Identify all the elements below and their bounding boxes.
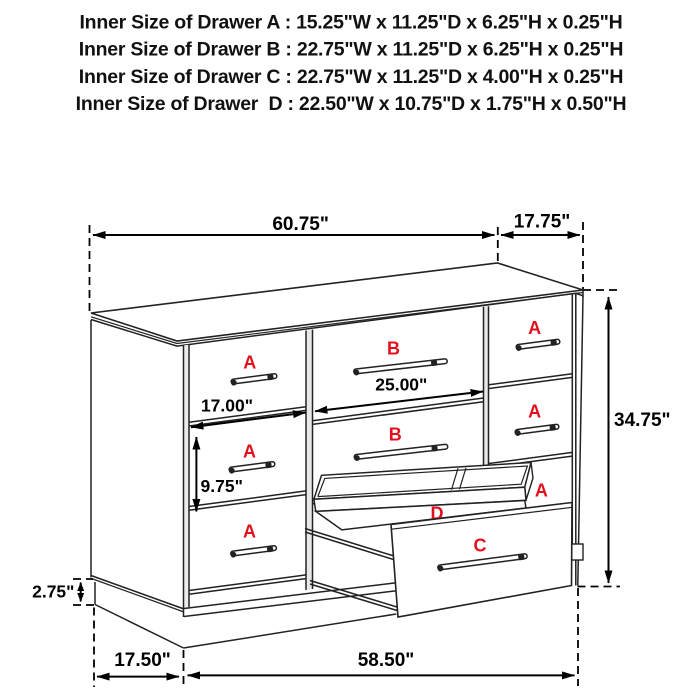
svg-text:A: A [243,441,256,461]
svg-text:60.75": 60.75" [272,214,329,235]
svg-text:A: A [528,318,541,338]
svg-text:Inner Size of Drawer B : 22.75: Inner Size of Drawer B : 22.75"W x 11.25… [79,39,623,61]
svg-text:58.50": 58.50" [358,650,415,671]
svg-text:A: A [528,401,541,421]
svg-text:Inner Size of Drawer A : 15.25: Inner Size of Drawer A : 15.25"W x 11.25… [80,11,623,33]
svg-text:C: C [474,535,487,555]
svg-text:17.00": 17.00" [201,396,253,416]
svg-text:A: A [535,481,548,501]
svg-text:Inner Size of Drawer D : 22.5: Inner Size of Drawer D : 22.50"W x 10.75… [76,93,627,115]
svg-text:Inner Size of Drawer C : 22.75: Inner Size of Drawer C : 22.75"W x 11.25… [79,66,623,88]
svg-text:34.75": 34.75" [614,410,671,431]
svg-text:17.75": 17.75" [514,212,571,233]
svg-text:B: B [387,338,400,358]
svg-text:17.50": 17.50" [114,650,171,671]
svg-text:A: A [243,352,256,372]
svg-text:9.75": 9.75" [201,476,243,496]
svg-text:25.00": 25.00" [375,375,427,395]
svg-text:2.75": 2.75" [32,581,74,601]
svg-text:A: A [243,521,256,541]
svg-text:B: B [389,424,402,444]
